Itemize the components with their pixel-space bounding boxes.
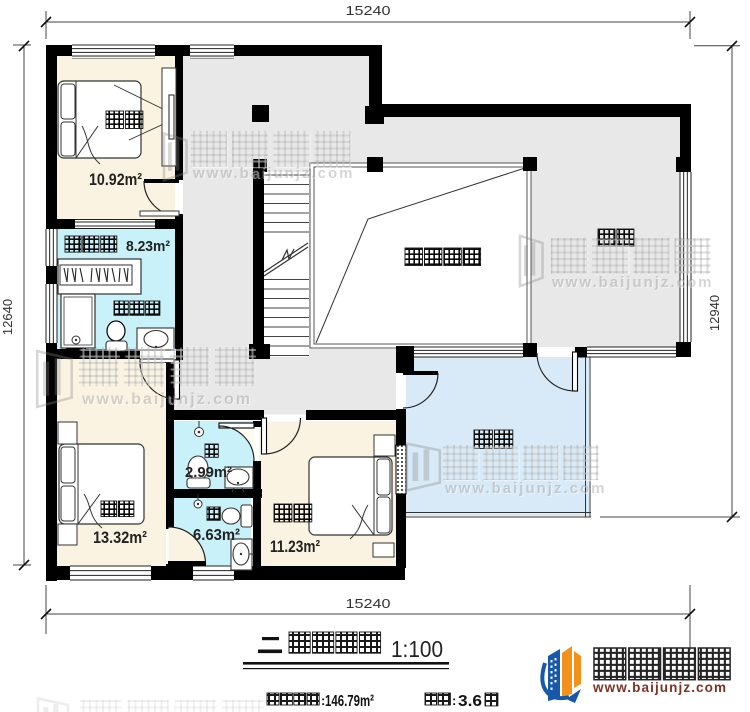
svg-text:10.92m²: 10.92m²: [89, 171, 142, 189]
svg-text:13.32m²: 13.32m²: [93, 528, 147, 547]
svg-text:8.23m²: 8.23m²: [126, 238, 170, 255]
svg-text::: :: [452, 693, 456, 708]
svg-text:12640: 12640: [0, 299, 15, 335]
svg-text:www.baijunjz.com: www.baijunjz.com: [81, 391, 252, 408]
svg-text:146.79m²: 146.79m²: [325, 693, 374, 710]
svg-text:6.63m²: 6.63m²: [193, 527, 240, 544]
svg-text:12940: 12940: [707, 295, 722, 331]
svg-text:15240: 15240: [346, 3, 391, 18]
svg-text:www.baijunjz.com: www.baijunjz.com: [192, 165, 354, 182]
svg-text:www.baijunjz.com: www.baijunjz.com: [444, 480, 606, 497]
svg-text:15240: 15240: [346, 596, 391, 611]
svg-text:1:100: 1:100: [391, 636, 443, 662]
svg-text:www.baijunjz.com: www.baijunjz.com: [551, 274, 713, 291]
svg-text:3.6: 3.6: [458, 693, 482, 710]
svg-text:www.baijunjz.com: www.baijunjz.com: [592, 680, 727, 695]
svg-text:11.23m²: 11.23m²: [270, 537, 320, 556]
svg-text:2.99m²: 2.99m²: [185, 464, 232, 481]
